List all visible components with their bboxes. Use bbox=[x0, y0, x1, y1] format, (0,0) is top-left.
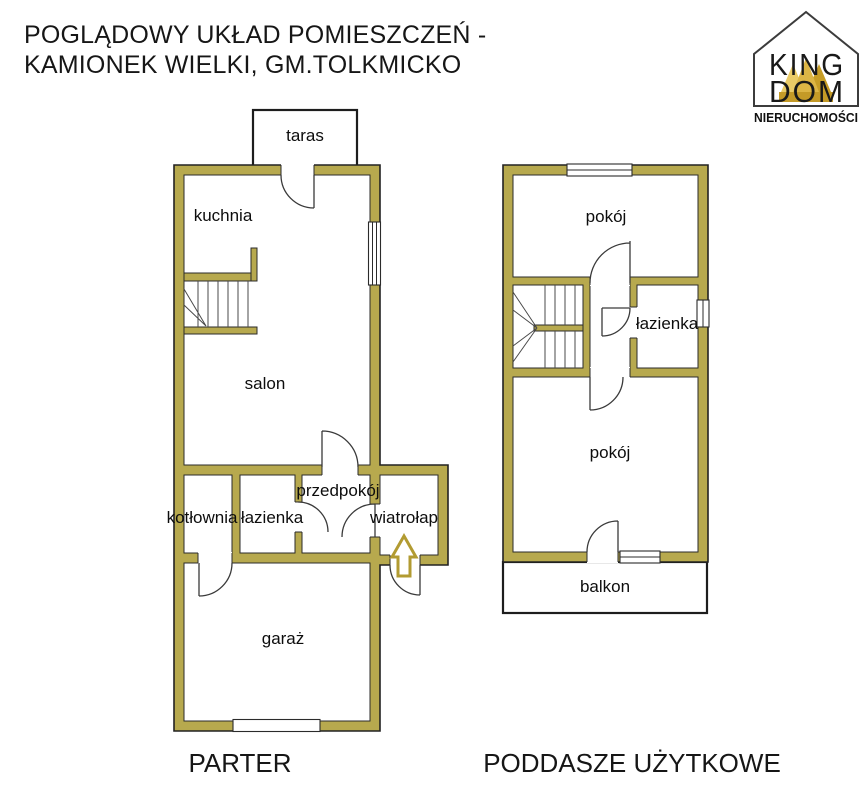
landing-poddasze bbox=[590, 285, 630, 368]
label-pokoj-gorny: pokój bbox=[586, 207, 627, 226]
label-pokoj-dolny: pokój bbox=[590, 443, 631, 462]
logo-word-dom: DOM bbox=[769, 74, 845, 109]
stair-wall-bottom bbox=[184, 327, 257, 334]
label-wiatrolap: wiatrołap bbox=[369, 508, 438, 527]
opening-pokoj-gorny bbox=[590, 276, 630, 286]
floor-name-poddasze: PODDASZE UŻYTKOWE bbox=[462, 748, 802, 779]
stair-wall-top bbox=[184, 273, 257, 281]
stair-landing-band bbox=[534, 325, 583, 331]
garage-door bbox=[233, 720, 320, 732]
label-lazienka-poddasze: łazienka bbox=[636, 314, 699, 333]
opening-balkon bbox=[587, 551, 618, 563]
opening-kotlownia bbox=[198, 552, 232, 564]
label-kuchnia: kuchnia bbox=[194, 206, 253, 225]
window-pokoj-dolny-bottom bbox=[620, 551, 660, 563]
label-taras: taras bbox=[286, 126, 324, 145]
label-przedpokoj: przedpokój bbox=[296, 481, 379, 500]
opening-pokoj-dolny bbox=[590, 367, 630, 378]
plan-poddasze: pokój łazienka pokój balkon bbox=[503, 164, 709, 613]
logo-subtitle: NIERUCHOMOŚCI bbox=[754, 110, 858, 125]
window-salon-right bbox=[369, 222, 381, 285]
stair-wall-stub bbox=[251, 248, 257, 281]
opening-taras bbox=[281, 164, 314, 176]
label-salon: salon bbox=[245, 374, 286, 393]
window-lazienka-right bbox=[697, 300, 709, 327]
room-pokoj-gorny bbox=[513, 175, 698, 277]
label-kotlownia: kotłownia bbox=[167, 508, 238, 527]
plan-parter: taras kuchnia salon przedpokój kotłownia… bbox=[167, 110, 448, 732]
floorplan-document: POGLĄDOWY UKŁAD POMIESZCZEŃ - KAMIONEK W… bbox=[0, 0, 868, 800]
opening-salon bbox=[322, 464, 358, 476]
label-lazienka-parter: łazienka bbox=[241, 508, 304, 527]
window-poddasze-top bbox=[567, 164, 632, 176]
kingdom-logo: KING DOM NIERUCHOMOŚCI bbox=[754, 12, 858, 125]
label-garaz: garaż bbox=[262, 629, 305, 648]
label-balkon: balkon bbox=[580, 577, 630, 596]
floorplan-drawing: taras kuchnia salon przedpokój kotłownia… bbox=[0, 0, 868, 800]
floor-name-parter: PARTER bbox=[100, 748, 380, 779]
room-pokoj-dolny bbox=[513, 377, 698, 552]
